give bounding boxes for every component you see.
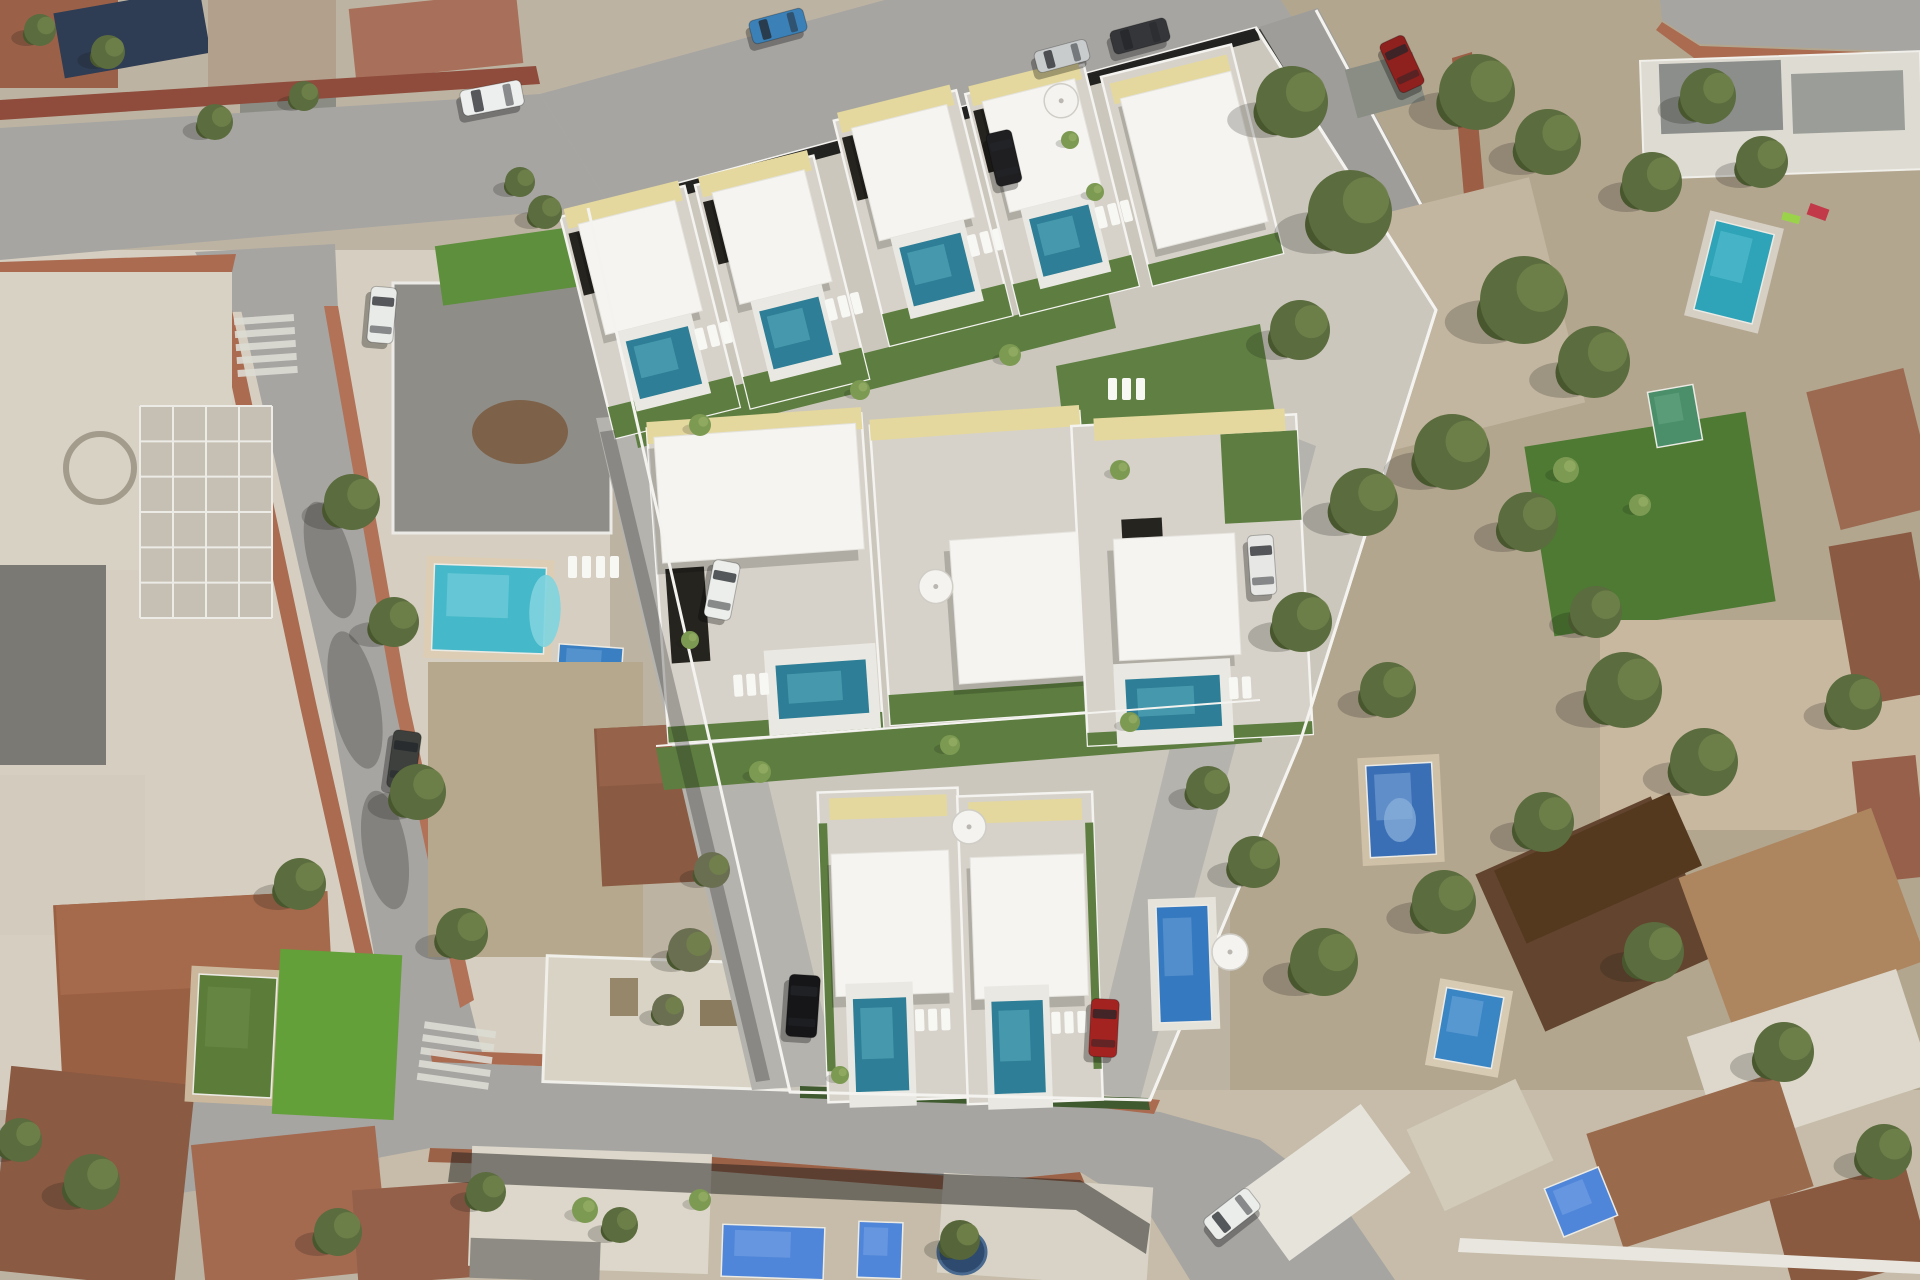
villa-mid-3 — [1071, 408, 1313, 749]
roof-below-road — [469, 1238, 600, 1280]
umbrella-neighbor-east — [1212, 934, 1248, 970]
aerial-photo-canvas — [0, 0, 1920, 1280]
villa-bottom-2 — [951, 792, 1103, 1111]
pergola-frame — [140, 406, 272, 618]
roof-topleft-2 — [208, 0, 336, 92]
pool-small-green — [1647, 384, 1702, 447]
pool-turquoise-arched — [423, 556, 562, 663]
pool-tarp-2 — [857, 1221, 903, 1279]
car-white-dev-east — [1242, 534, 1278, 602]
apartment-roof-1 — [0, 565, 106, 765]
villa-bottom-1 — [818, 788, 969, 1109]
pool-neighbor-east — [1148, 897, 1221, 1031]
villa-mid-2 — [869, 405, 1100, 725]
loungers-villa-top-5 — [1108, 378, 1145, 400]
villa-mid-1 — [646, 407, 883, 743]
roof-brown-patch — [472, 400, 568, 464]
pool-mottled-blotch — [1384, 798, 1416, 842]
pool-algae — [185, 966, 286, 1107]
car-black-dev-bottom — [780, 974, 821, 1044]
pool-tarp-1 — [721, 1224, 825, 1280]
lawn-bright — [272, 949, 402, 1120]
pool-oval-blue — [1425, 978, 1513, 1078]
lawn-right — [1524, 412, 1775, 637]
car-red-dev-bottom — [1083, 998, 1119, 1064]
yard-clutter-2 — [610, 978, 638, 1016]
roof-topright-gray-2 — [1791, 70, 1905, 134]
tree — [0, 1118, 42, 1162]
car-white-parked-street — [361, 286, 397, 350]
aerial-photo — [0, 0, 1920, 1280]
